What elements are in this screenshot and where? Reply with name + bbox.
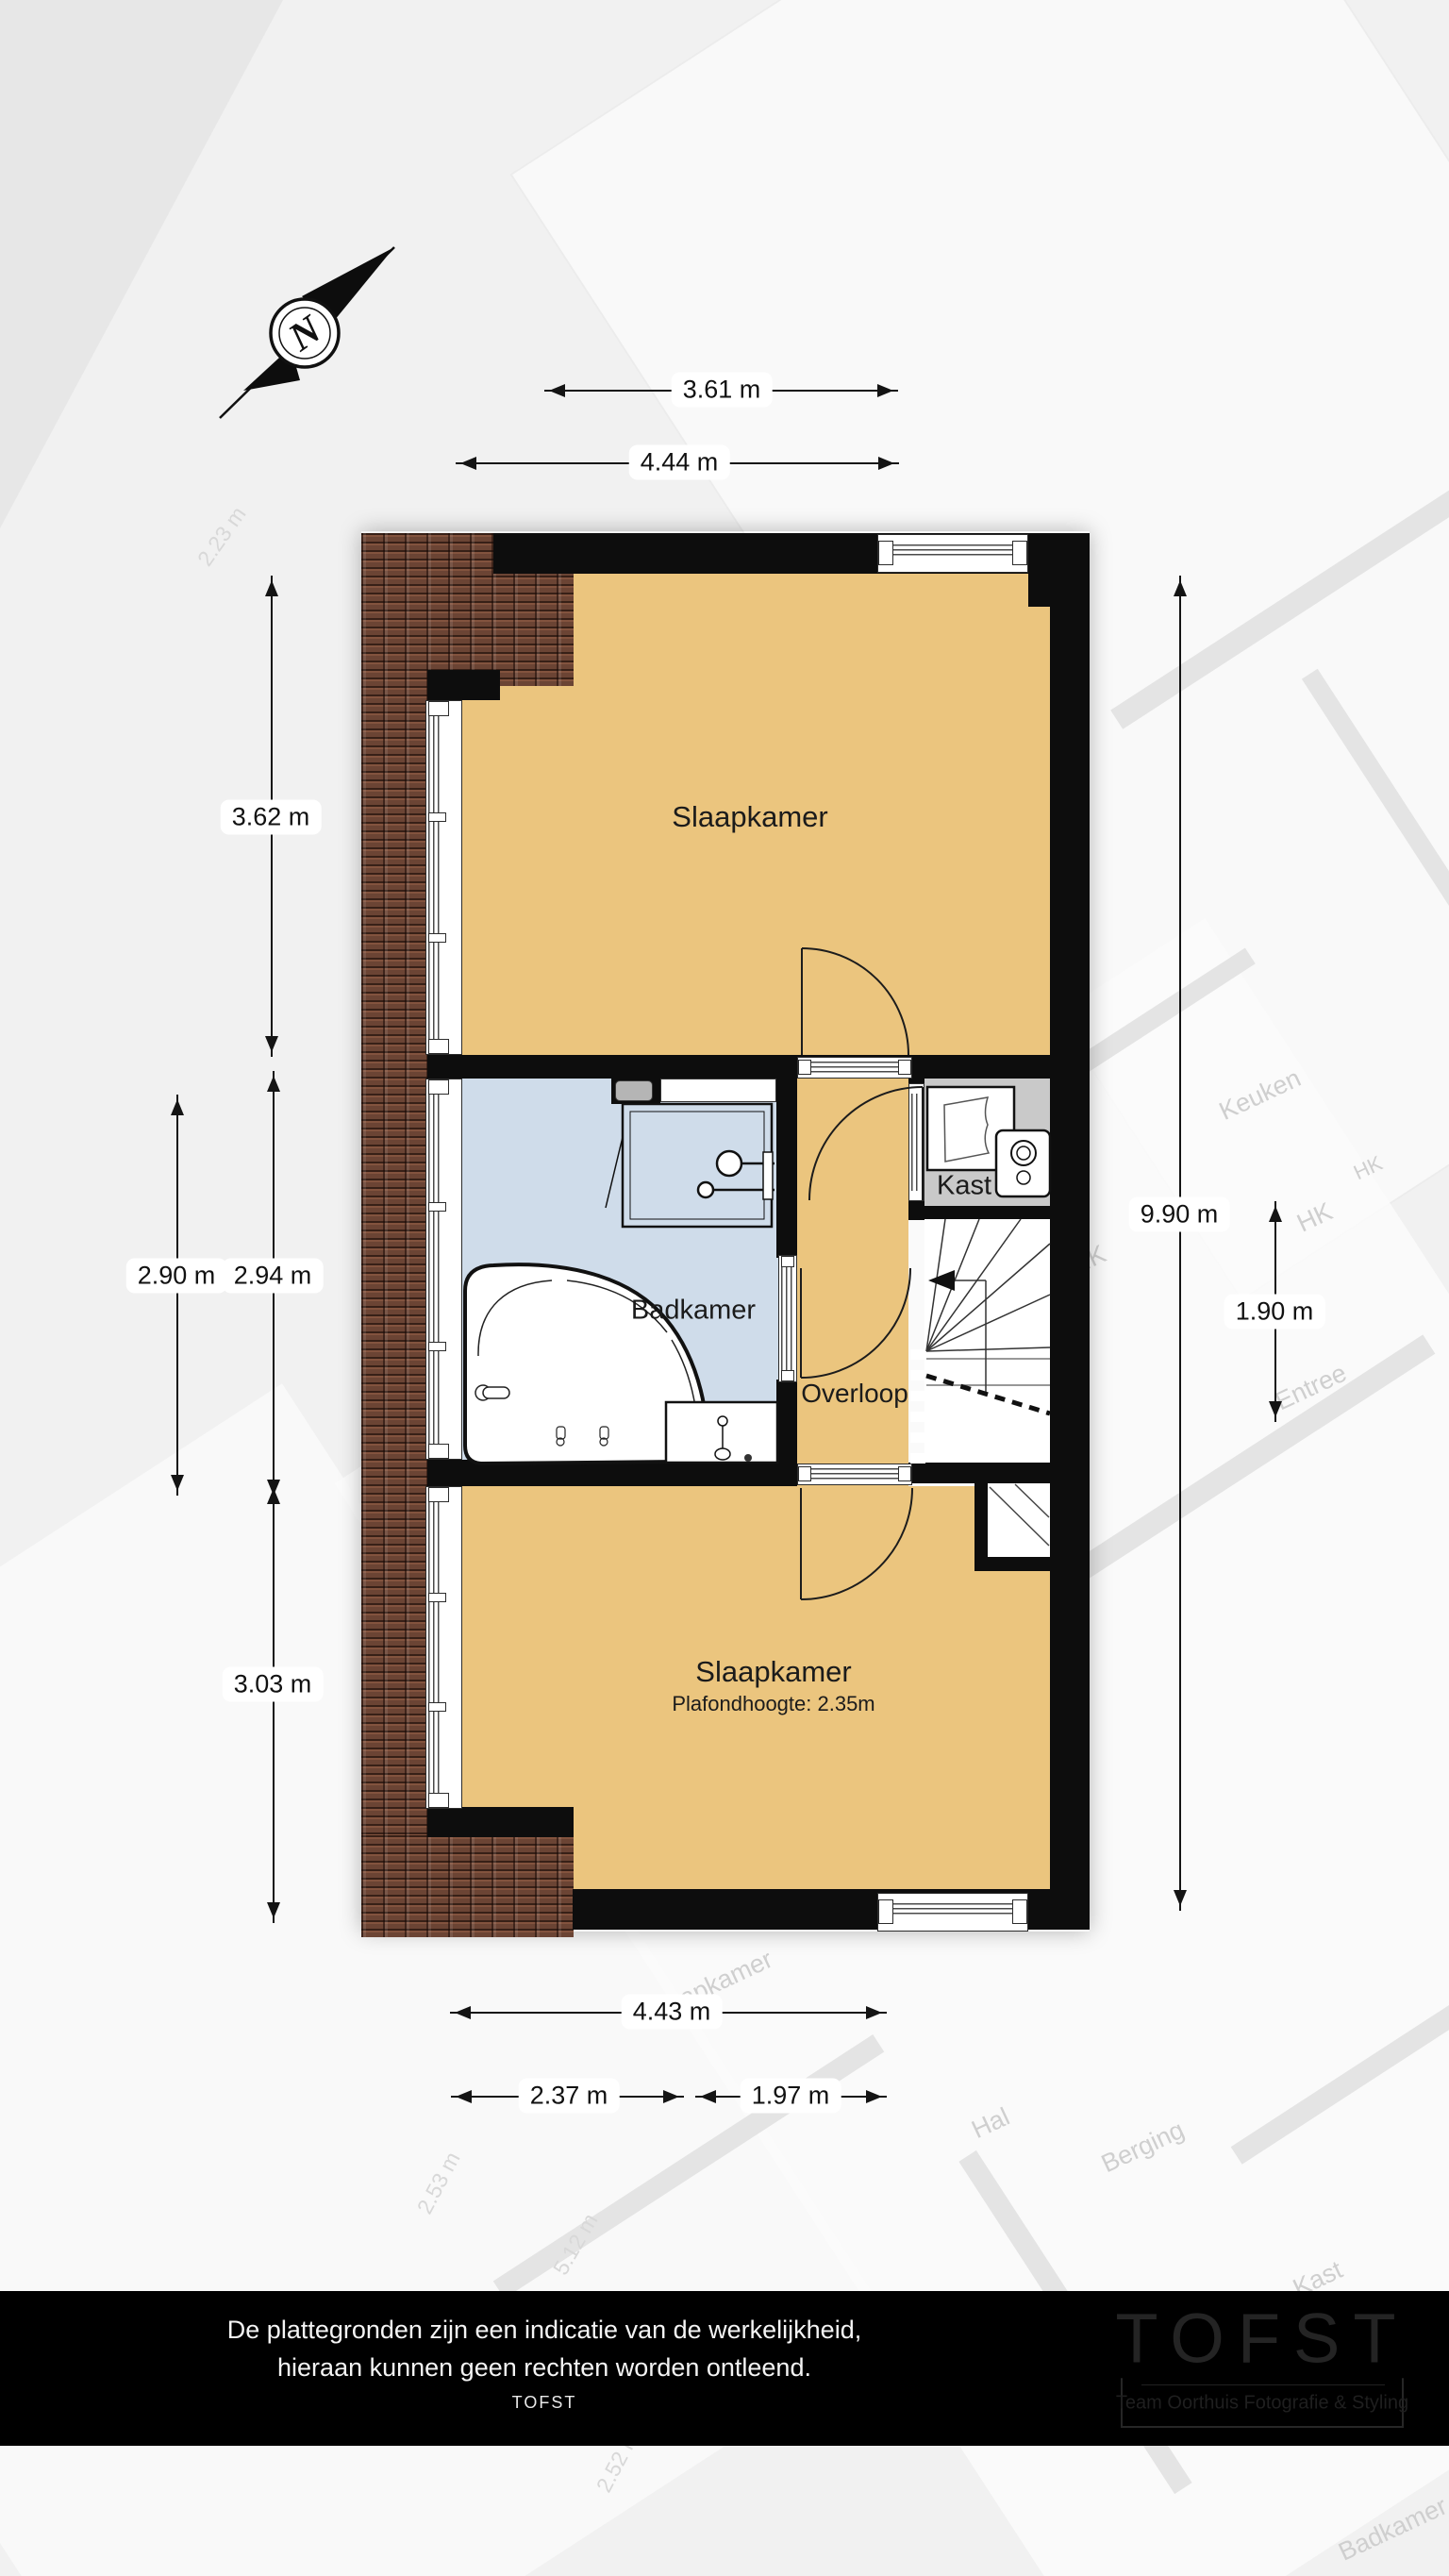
- door-panel-lines: [808, 1468, 902, 1480]
- window-cap: [428, 1793, 449, 1808]
- wall-bedroom-bathroom: [427, 1055, 1050, 1079]
- dim-label-bottom-3: 1.97 m: [741, 2079, 841, 2114]
- room-label-closet: Kast: [937, 1171, 991, 1202]
- dim-label-right-2: 1.90 m: [1224, 1295, 1325, 1330]
- room-bathroom-floor: [427, 1079, 797, 1465]
- vent-box: [615, 1080, 653, 1101]
- window-left-bedroom-top: [425, 700, 462, 1055]
- window-cap: [1012, 541, 1027, 565]
- bathroom-niche: [660, 1079, 776, 1102]
- room-label-bedroom-top: Slaapkamer: [672, 800, 827, 834]
- footer-disclaimer-line2: hieraan kunnen geen rechten worden ontle…: [277, 2353, 811, 2383]
- roof-tiles-left-strip: [361, 533, 427, 1934]
- window-glazing: [428, 711, 441, 1045]
- dim-label-right-1: 9.90 m: [1129, 1197, 1230, 1232]
- stairwell-floor: [924, 1219, 1050, 1469]
- dim-label-bottom-1: 4.43 m: [622, 1995, 723, 2030]
- window-bottom: [877, 1893, 1028, 1932]
- window-cap: [1012, 1899, 1027, 1924]
- door-panel-lines: [808, 1062, 902, 1074]
- window-cap: [428, 1444, 449, 1459]
- dim-label-top-2: 4.44 m: [629, 445, 730, 480]
- floorplan-page: Keuken HK HK HK Entree Slaapkamer Hal Be…: [0, 0, 1449, 2576]
- window-glazing: [888, 544, 1018, 559]
- window-cap: [428, 1039, 449, 1054]
- room-landing-floor: [797, 1079, 908, 1486]
- wall-closet-stairs: [908, 1206, 1050, 1219]
- door-panel-lines: [781, 1265, 792, 1372]
- window-cap: [878, 1899, 893, 1924]
- door-cap: [798, 1060, 811, 1075]
- dim-label-top-1: 3.61 m: [672, 373, 773, 408]
- dim-line-right-1: [1179, 576, 1181, 1911]
- door-landing-bedroom-bottom: [797, 1464, 912, 1485]
- door-landing-closet: [908, 1083, 924, 1201]
- door-panel-lines: [911, 1094, 921, 1191]
- window-cap: [428, 933, 446, 943]
- window-left-bathroom: [425, 1079, 462, 1460]
- window-cap: [428, 1487, 449, 1502]
- footer-disclaimer-line1: De plattegronden zijn een indicatie van …: [227, 2316, 861, 2345]
- door-bathroom-landing: [778, 1255, 797, 1382]
- wall-left-stub-top: [427, 670, 500, 700]
- wall-bathroom-bedroom2: [427, 1460, 797, 1486]
- tofst-logo-rule: [1141, 2384, 1385, 2385]
- wall-left-stub-bottom: [427, 1807, 574, 1837]
- dim-line-left-4: [273, 1483, 275, 1923]
- dim-label-left-4: 3.03 m: [223, 1667, 324, 1702]
- background-wedge: [0, 0, 283, 528]
- door-cap: [898, 1060, 911, 1075]
- room-label-landing: Overloop: [801, 1379, 908, 1409]
- door-cap: [781, 1256, 794, 1267]
- window-cap: [428, 1342, 446, 1351]
- door-bedroom-top-landing: [797, 1057, 912, 1079]
- window-cap: [428, 812, 446, 822]
- wall-right: [1050, 533, 1090, 1930]
- ghost-dim-label: 2.23 m: [192, 502, 251, 571]
- window-cap: [428, 1202, 446, 1212]
- dim-label-left-1: 3.62 m: [221, 800, 322, 835]
- window-cap: [878, 541, 893, 565]
- wall-stairs-bottom: [908, 1463, 1050, 1483]
- window-top: [877, 534, 1028, 573]
- dim-label-left-2: 2.90 m: [126, 1259, 227, 1294]
- wall-bathroom-landing-upper: [776, 1079, 797, 1258]
- door-cap: [781, 1370, 794, 1381]
- tofst-logo-subtitle: Team Oorthuis Fotografie & Styling: [1116, 2393, 1408, 2415]
- roof-tiles-bottom-block: [361, 1835, 574, 1937]
- room-label-ceiling-height: Plafondhoogte: 2.35m: [672, 1692, 874, 1716]
- door-cap: [898, 1466, 911, 1481]
- door-cap: [798, 1466, 811, 1481]
- window-cap: [428, 1079, 449, 1095]
- room-label-bedroom-bottom: Slaapkamer: [695, 1655, 851, 1689]
- window-left-bedroom-bottom: [425, 1486, 462, 1809]
- dim-label-bottom-2: 2.37 m: [519, 2079, 620, 2114]
- footer-brand-text: TOFST: [512, 2393, 577, 2413]
- understairs-closet-floor: [988, 1483, 1050, 1559]
- wall-top-right-corner: [1028, 533, 1090, 607]
- window-glazing: [428, 1089, 441, 1449]
- window-glazing: [888, 1903, 1018, 1917]
- window-cap: [428, 1593, 446, 1602]
- tofst-logo-title: TOFST: [1102, 2298, 1422, 2378]
- window-glazing: [428, 1497, 441, 1798]
- window-cap: [428, 1702, 446, 1712]
- wall-understairs-bottom: [974, 1557, 1050, 1571]
- window-cap: [428, 701, 449, 716]
- room-label-bathroom: Badkamer: [631, 1296, 756, 1327]
- dim-line-left-2: [176, 1095, 178, 1496]
- dim-label-left-3: 2.94 m: [223, 1259, 324, 1294]
